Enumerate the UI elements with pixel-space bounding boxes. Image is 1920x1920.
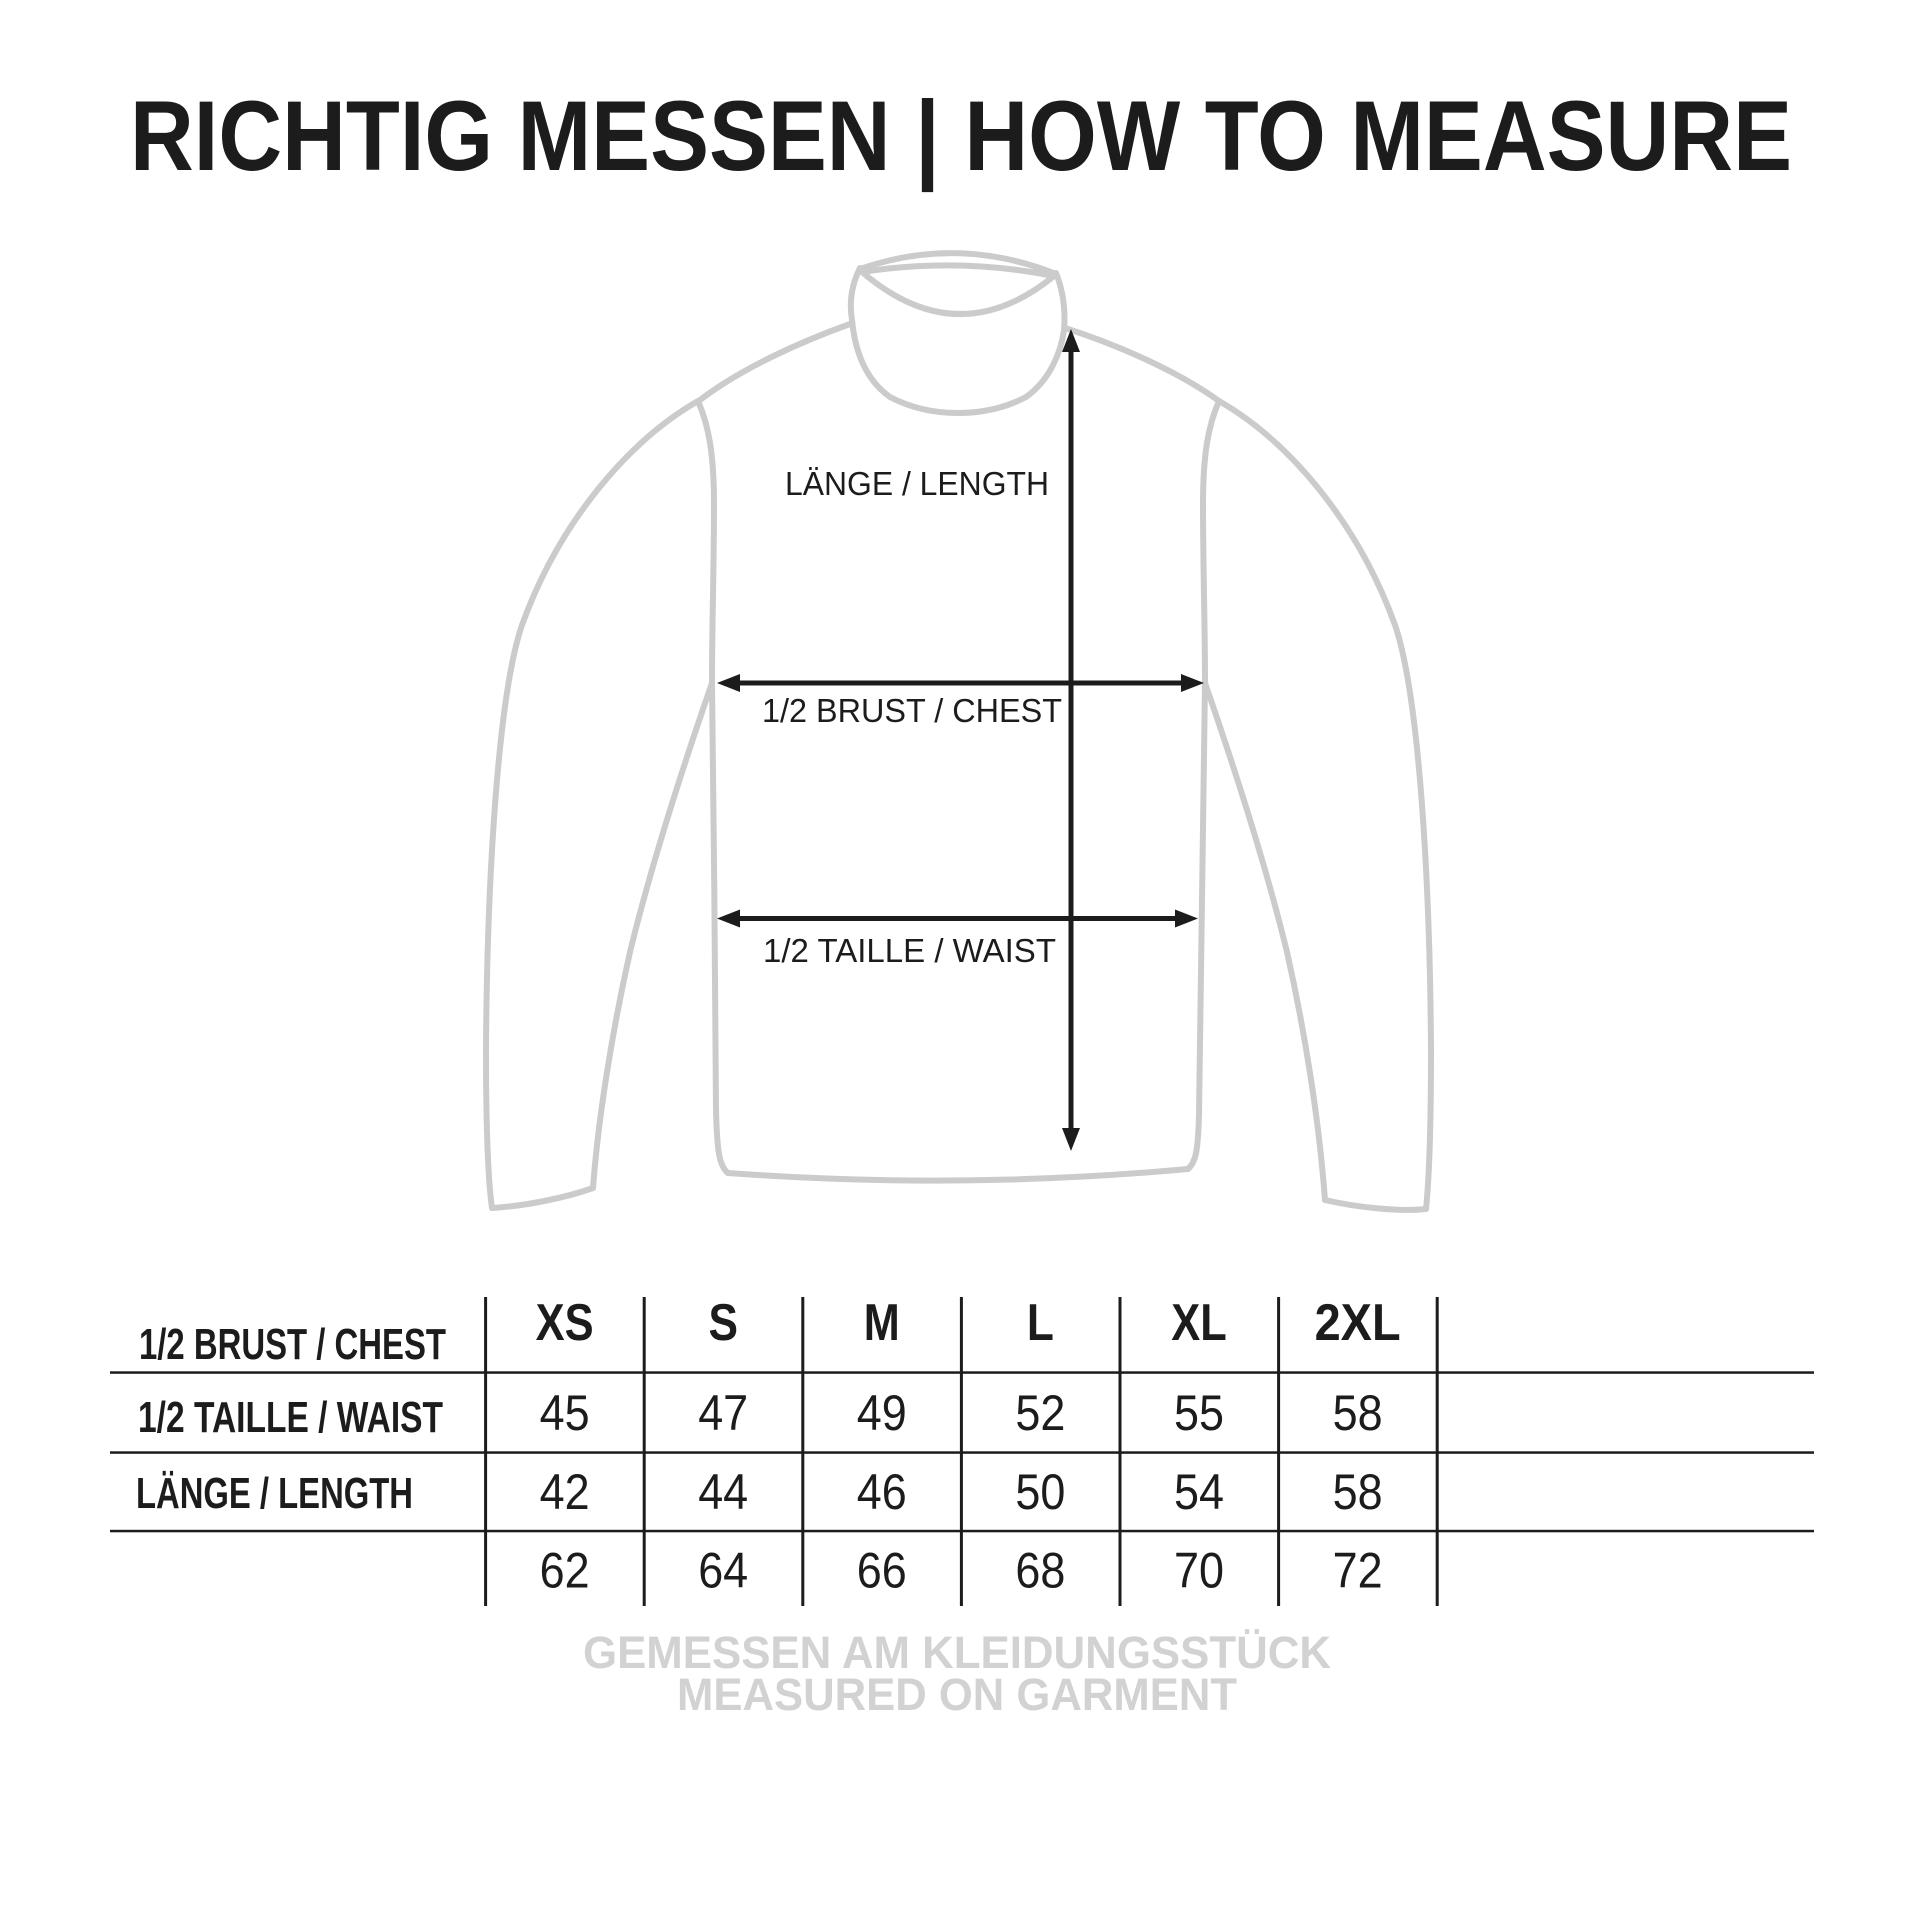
svg-text:52: 52: [1015, 1385, 1065, 1441]
svg-text:1/2 TAILLE / WAIST: 1/2 TAILLE / WAIST: [138, 1393, 443, 1442]
svg-text:70: 70: [1174, 1543, 1224, 1599]
svg-text:XL: XL: [1171, 1294, 1227, 1352]
svg-text:72: 72: [1333, 1543, 1383, 1599]
svg-text:MEASURED ON GARMENT: MEASURED ON GARMENT: [677, 1669, 1237, 1720]
svg-text:64: 64: [698, 1543, 748, 1599]
svg-text:50: 50: [1015, 1464, 1065, 1520]
svg-text:M: M: [864, 1294, 900, 1352]
svg-text:LÄNGE / LENGTH: LÄNGE / LENGTH: [785, 465, 1049, 502]
svg-text:1/2 BRUST / CHEST: 1/2 BRUST / CHEST: [762, 692, 1062, 729]
svg-text:1/2 BRUST / CHEST: 1/2 BRUST / CHEST: [139, 1320, 446, 1369]
svg-text:58: 58: [1333, 1385, 1383, 1441]
svg-text:LÄNGE / LENGTH: LÄNGE / LENGTH: [136, 1469, 413, 1518]
svg-text:S: S: [708, 1294, 738, 1352]
svg-text:62: 62: [540, 1543, 590, 1599]
svg-text:46: 46: [857, 1464, 907, 1520]
svg-text:68: 68: [1015, 1543, 1065, 1599]
svg-text:42: 42: [540, 1464, 590, 1520]
svg-text:XS: XS: [536, 1294, 594, 1352]
svg-text:RICHTIG MESSEN | HOW TO MEASUR: RICHTIG MESSEN | HOW TO MEASURE: [130, 80, 1792, 193]
svg-text:58: 58: [1333, 1464, 1383, 1520]
svg-text:2XL: 2XL: [1315, 1294, 1401, 1352]
svg-text:45: 45: [540, 1385, 590, 1441]
svg-text:47: 47: [698, 1385, 748, 1441]
svg-text:1/2 TAILLE / WAIST: 1/2 TAILLE / WAIST: [763, 932, 1056, 969]
svg-text:55: 55: [1174, 1385, 1224, 1441]
svg-text:44: 44: [698, 1464, 748, 1520]
svg-text:54: 54: [1174, 1464, 1224, 1520]
svg-text:49: 49: [857, 1385, 907, 1441]
svg-text:66: 66: [857, 1543, 907, 1599]
svg-text:L: L: [1027, 1294, 1054, 1352]
